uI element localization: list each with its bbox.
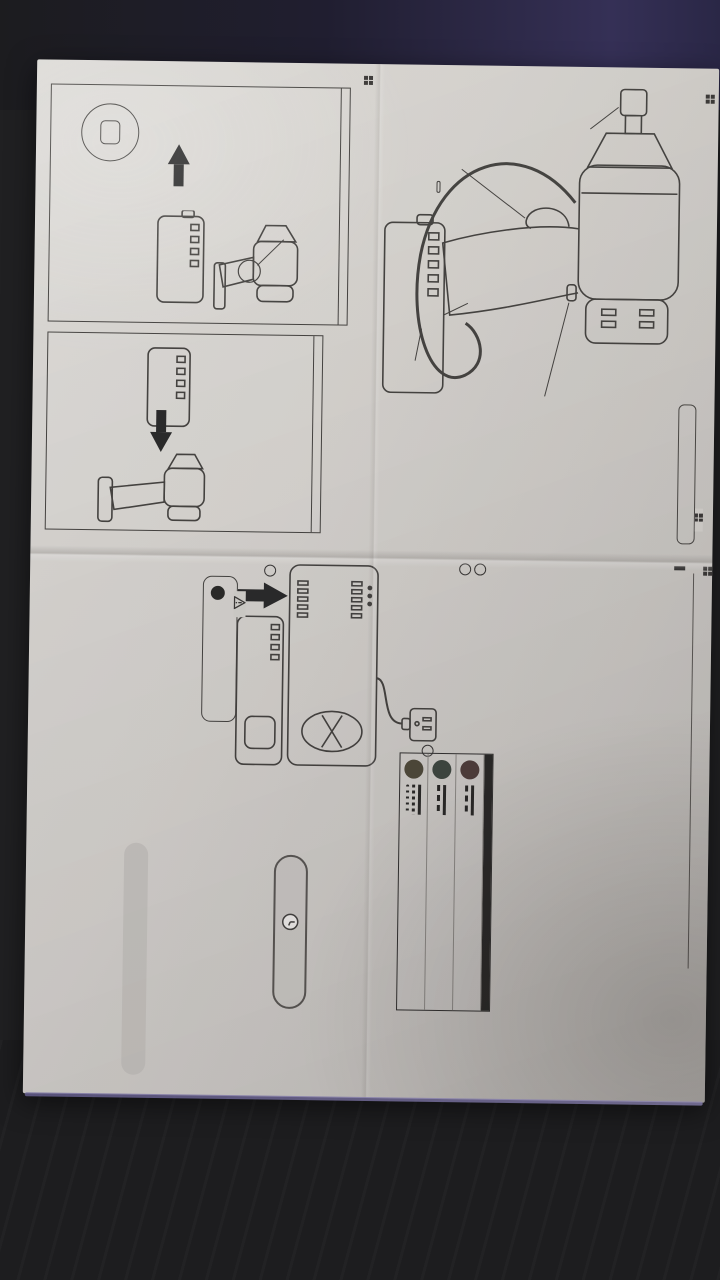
led-status-table — [396, 752, 494, 1011]
removal-battery-sketch — [153, 210, 208, 307]
wall-outlet — [410, 709, 436, 741]
led-entry — [415, 785, 421, 1004]
charge-notes — [667, 566, 686, 968]
install-battery-sketch — [143, 344, 194, 429]
install-tool-sketch — [56, 443, 217, 529]
square-drive — [621, 89, 647, 115]
led-entry — [462, 785, 468, 1004]
led-row-yellow — [397, 753, 429, 1009]
dashed-line-sample — [437, 785, 440, 815]
solid-line-sample — [418, 785, 421, 815]
impact-wrench-illustration — [379, 74, 703, 498]
fast-blink-line-sample — [412, 785, 415, 815]
section-mark-icon — [706, 95, 715, 104]
led-entry — [403, 785, 409, 1004]
manual-document — [23, 59, 719, 1102]
removal-box — [48, 83, 351, 325]
install-box — [45, 331, 324, 533]
attach-section-title — [364, 76, 373, 90]
warning-triangle-icon — [234, 596, 246, 609]
exclamation-icon — [211, 586, 225, 600]
manual-paper — [23, 59, 719, 1102]
dashed-line-sample — [465, 785, 468, 815]
led-row-red — [453, 754, 485, 1010]
charger-battery — [235, 616, 283, 765]
spec-box-title — [695, 509, 703, 532]
step-number-badge — [459, 563, 471, 575]
step-number-badge — [474, 563, 486, 575]
longevity-body — [146, 721, 148, 833]
request-rule — [688, 573, 695, 968]
led-entry — [409, 785, 415, 1004]
longevity-tips-box — [121, 843, 148, 1075]
warning-title — [233, 591, 245, 617]
charger-body — [287, 565, 378, 766]
accessory-callout — [432, 181, 451, 193]
red-led-badge — [460, 760, 479, 779]
slow-blink-line-sample — [406, 785, 409, 815]
solid-line-sample — [471, 785, 474, 815]
tool-figure-wrap — [379, 74, 703, 498]
green-led-badge — [432, 760, 451, 779]
release-button-shape — [100, 120, 120, 144]
slide-out-arrow — [168, 144, 190, 164]
warning-body — [209, 586, 225, 712]
photo-scene — [0, 0, 720, 1280]
led-entry — [440, 785, 446, 1004]
longevity-tip — [135, 855, 138, 1063]
led-entry — [434, 785, 440, 1004]
clock-icon — [281, 913, 299, 931]
removal-step2-text — [139, 182, 141, 314]
charge-note — [667, 566, 686, 968]
removal-heading — [338, 89, 350, 325]
charge-request-block — [667, 566, 694, 968]
switch-highlight-circle — [238, 260, 260, 282]
removal-step1-text — [306, 98, 308, 224]
removal-tool-sketch — [213, 221, 312, 322]
install-text — [278, 346, 281, 526]
trigger-shape — [526, 208, 569, 229]
charge-section-title — [703, 567, 712, 581]
longevity-tip — [131, 855, 134, 1063]
install-heading — [311, 336, 323, 532]
warning-box — [201, 576, 238, 722]
release-button-detail — [81, 103, 140, 162]
note-highlight — [674, 566, 685, 570]
yellow-led-badge — [404, 759, 423, 778]
section-mark-icon — [703, 567, 712, 576]
led-row-green — [425, 754, 457, 1010]
accessory-item — [436, 181, 440, 193]
section-mark-icon — [364, 76, 373, 85]
solid-line-sample — [443, 785, 446, 815]
spec-mark-icon — [695, 514, 703, 522]
parts-section-title — [706, 95, 715, 109]
led-entry — [468, 785, 474, 1004]
charge-time-box — [272, 855, 308, 1009]
